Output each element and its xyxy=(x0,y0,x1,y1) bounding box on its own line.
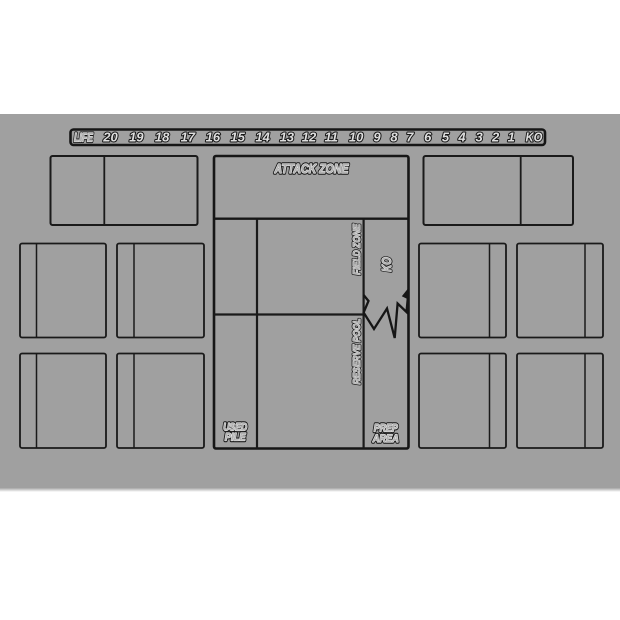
svg-text:10: 10 xyxy=(349,129,364,144)
svg-text:17: 17 xyxy=(181,129,196,144)
svg-text:KO: KO xyxy=(526,130,543,145)
svg-text:13: 13 xyxy=(280,129,295,144)
svg-text:14: 14 xyxy=(255,129,270,144)
svg-text:5: 5 xyxy=(442,129,450,144)
svg-text:RESERVE POOL: RESERVE POOL xyxy=(351,319,363,385)
svg-text:AREA: AREA xyxy=(372,433,399,445)
svg-text:3: 3 xyxy=(475,129,483,144)
svg-text:FIELD ZONE: FIELD ZONE xyxy=(351,223,363,275)
svg-text:20: 20 xyxy=(102,129,118,144)
svg-text:LIFE: LIFE xyxy=(74,131,94,145)
svg-text:ATTACK ZONE: ATTACK ZONE xyxy=(274,161,349,176)
svg-text:18: 18 xyxy=(155,129,170,144)
svg-text:9: 9 xyxy=(373,129,381,144)
svg-text:12: 12 xyxy=(302,129,317,144)
svg-text:16: 16 xyxy=(206,129,221,144)
svg-text:15: 15 xyxy=(230,129,245,144)
svg-text:8: 8 xyxy=(390,129,398,144)
svg-text:4: 4 xyxy=(457,129,466,144)
svg-text:2: 2 xyxy=(491,129,500,144)
svg-text:11: 11 xyxy=(324,129,338,144)
svg-text:PILE: PILE xyxy=(225,432,247,444)
svg-text:KO: KO xyxy=(380,257,394,272)
svg-text:19: 19 xyxy=(129,129,144,144)
svg-text:7: 7 xyxy=(406,129,414,144)
svg-text:1: 1 xyxy=(508,129,515,144)
svg-text:6: 6 xyxy=(424,129,432,144)
